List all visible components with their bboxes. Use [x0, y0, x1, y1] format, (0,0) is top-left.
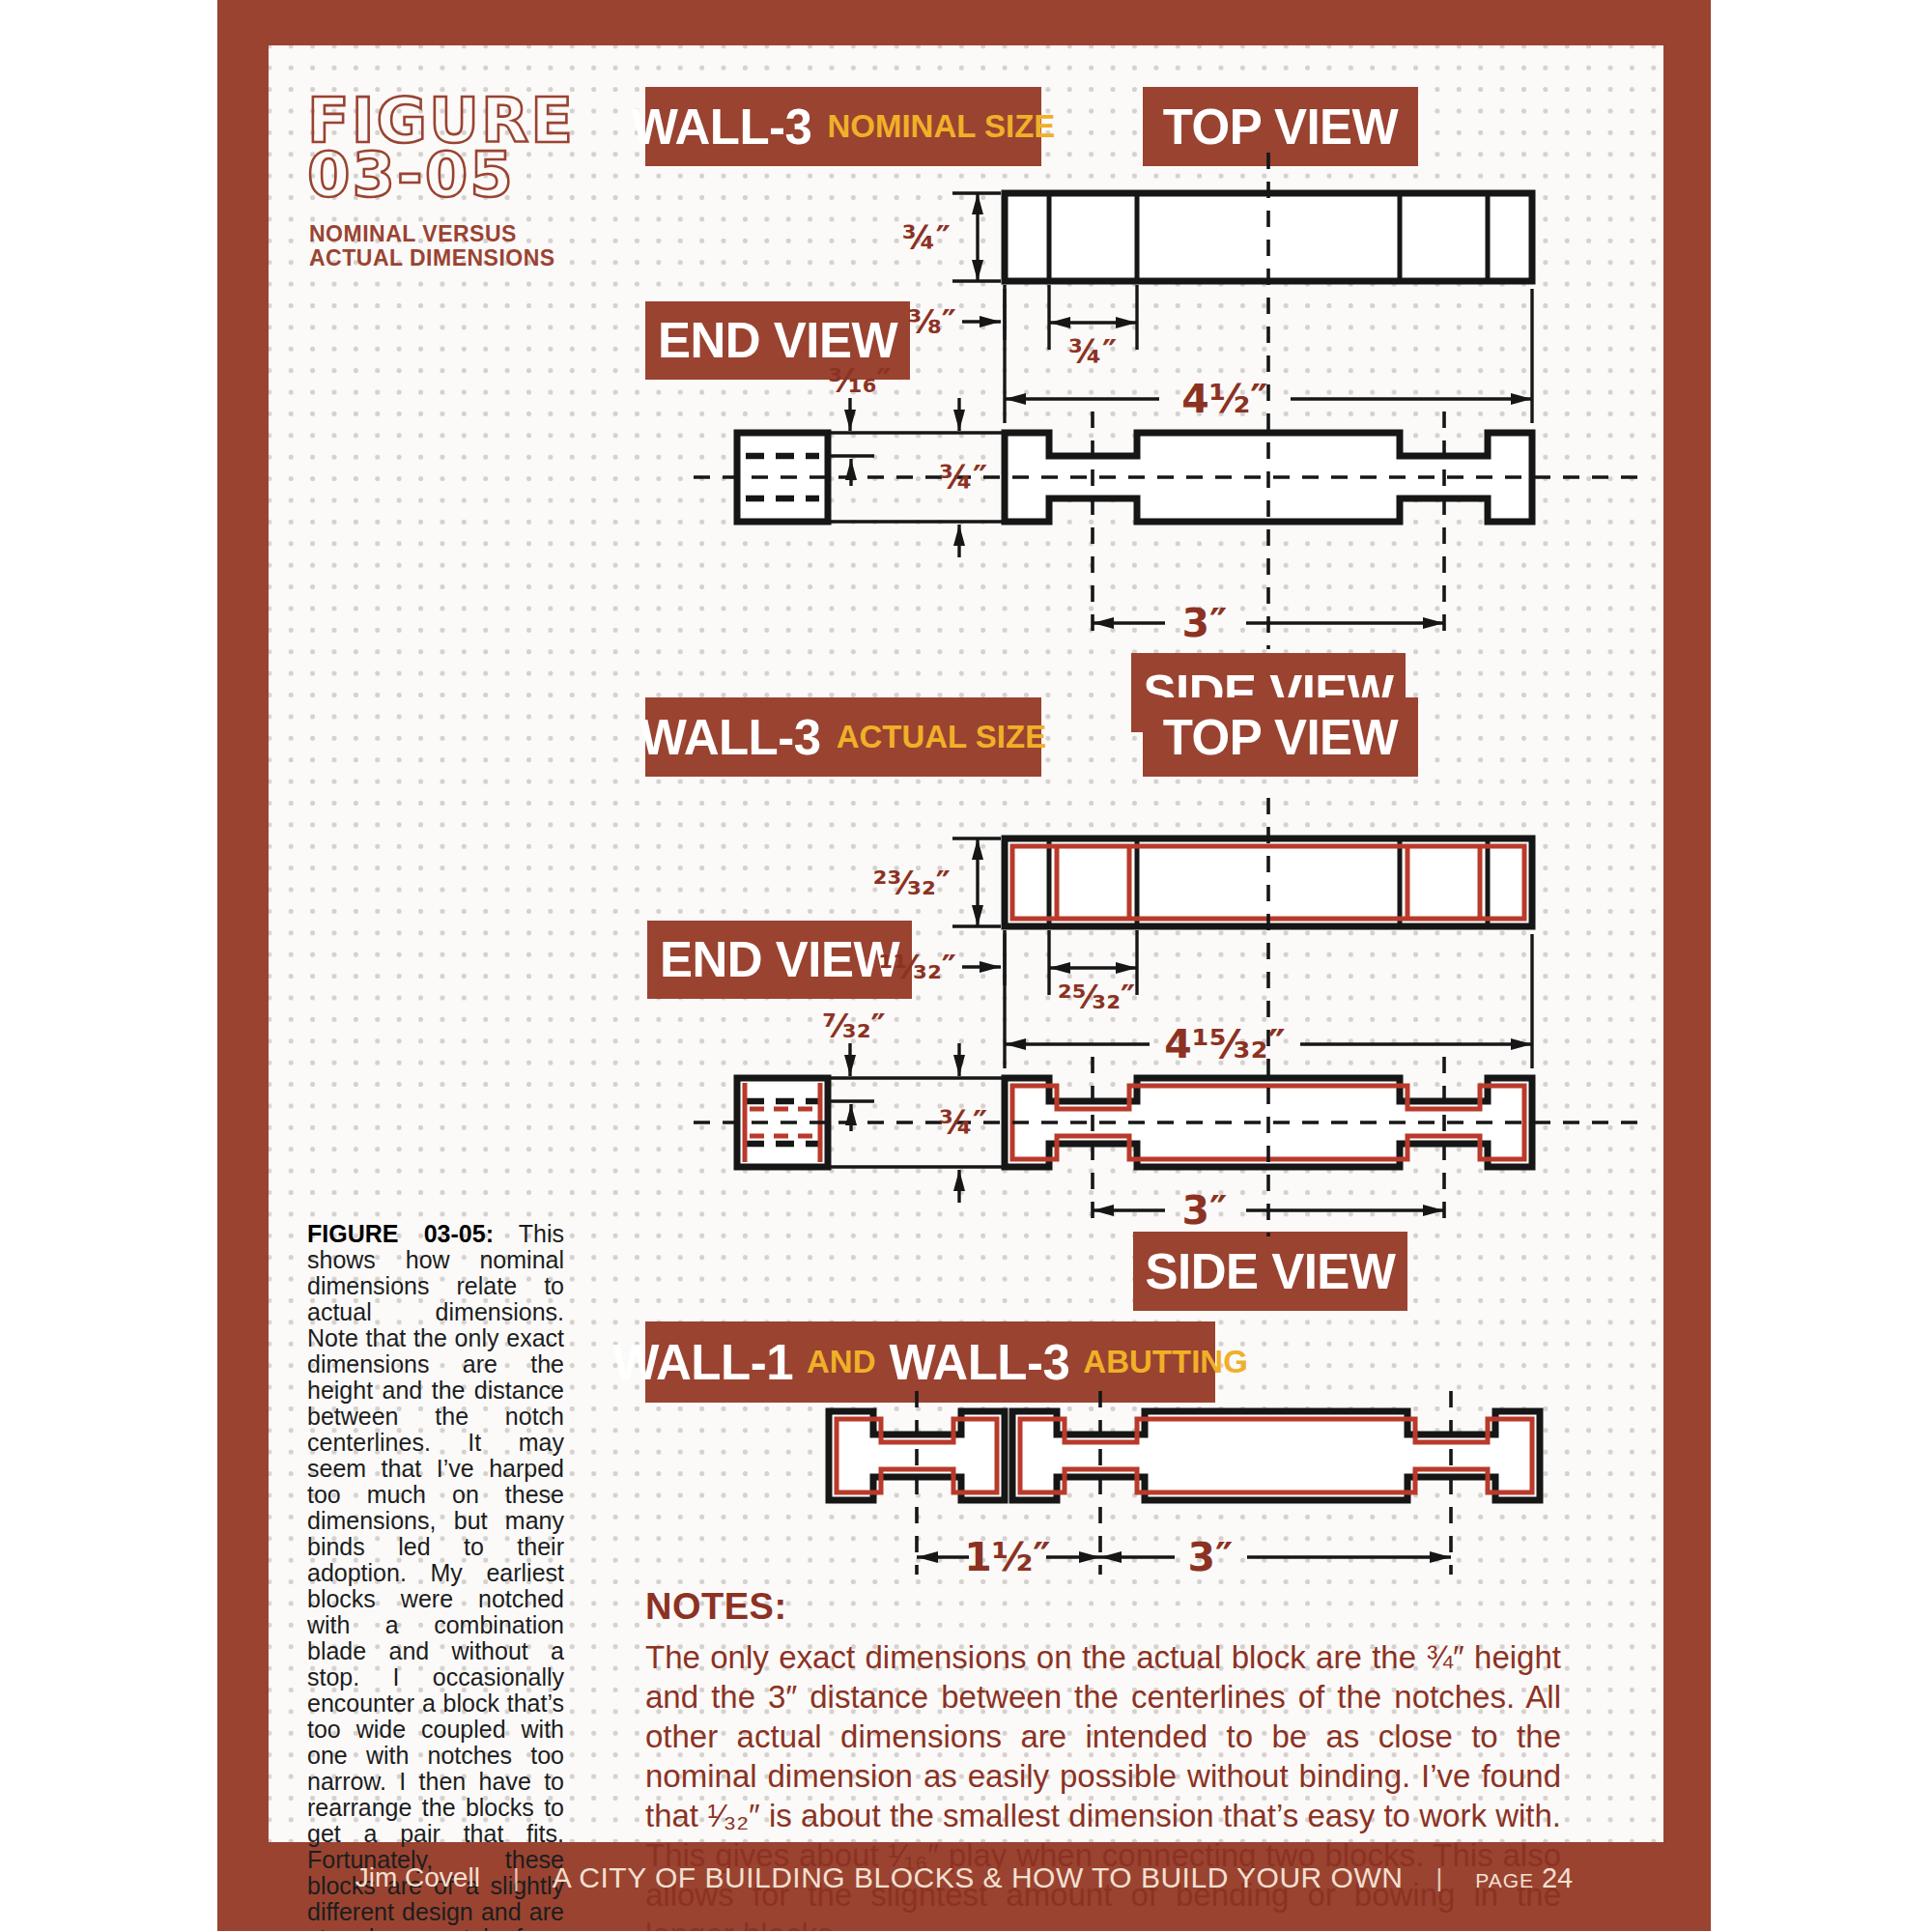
dim-label: 4½″ — [1181, 376, 1267, 422]
dim-label: ²⁵⁄₃₂″ — [1058, 978, 1135, 1016]
figure-caption: FIGURE 03-05: This shows how nominal dim… — [307, 1221, 564, 1931]
dim-label: 3″ — [1188, 1534, 1234, 1580]
dim-label: 3″ — [1182, 1187, 1228, 1234]
dim-label: ¾″ — [902, 218, 951, 257]
dim-label: 4¹⁵⁄₃₂″ — [1164, 1021, 1286, 1067]
footer-book-title: A CITY OF BUILDING BLOCKS & HOW TO BUILD… — [553, 1861, 1404, 1894]
dim-label: 3″ — [1182, 600, 1228, 646]
dim-label: ²³⁄₃₂″ — [873, 864, 951, 902]
dim-label: ¾″ — [939, 1103, 987, 1142]
abutting-drawing: 1½″ 3″ — [829, 1391, 1540, 1580]
footer-author: Jim Covell — [355, 1862, 480, 1893]
dim-label: 1½″ — [964, 1534, 1050, 1580]
dim-label: ¾″ — [939, 458, 987, 497]
dim-label: ⁷⁄₃₂″ — [822, 1007, 886, 1045]
dim-label: ⅜″ — [908, 302, 956, 341]
dim-label: ¹¹⁄₃₂″ — [879, 948, 956, 986]
dim-label: ³⁄₁₆″ — [828, 361, 892, 400]
footer-page-number: 24 — [1542, 1862, 1573, 1894]
footer-page-label: PAGE — [1475, 1869, 1534, 1892]
wall3-profile — [1012, 1411, 1540, 1500]
notes-heading: NOTES: — [645, 1586, 1561, 1628]
nominal-top-view — [1005, 193, 1532, 281]
footer-separator: | — [1435, 1863, 1442, 1893]
drawing-panel: FIGURE 03-05 NOMINAL VERSUS ACTUAL DIMEN… — [269, 45, 1663, 1842]
page-footer: Jim Covell | A CITY OF BUILDING BLOCKS &… — [217, 1849, 1711, 1907]
actual-top-view — [1005, 838, 1532, 926]
dim-label: ¾″ — [1068, 332, 1117, 371]
page: FIGURE 03-05 NOMINAL VERSUS ACTUAL DIMEN… — [0, 0, 1932, 1931]
caption-body: This shows how nominal dimensions relate… — [307, 1220, 564, 1931]
caption-lead: FIGURE 03-05: — [307, 1220, 494, 1247]
footer-separator: | — [513, 1863, 520, 1893]
